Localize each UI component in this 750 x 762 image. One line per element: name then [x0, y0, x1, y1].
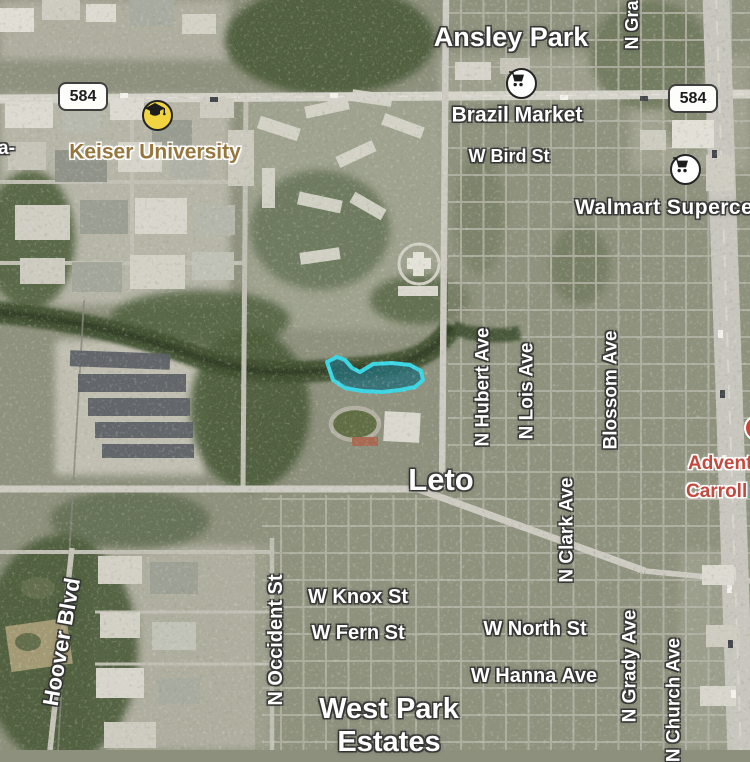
street-label-w-knox-st: W Knox St: [308, 586, 408, 608]
street-label-n-gra: N Gra: [623, 0, 643, 49]
street-label-n-occident-st: N Occident St: [265, 574, 287, 705]
poi-label-adventhealth-carrollwood[interactable]: Advent Carroll: [688, 450, 750, 506]
street-label-n-hubert-ave: N Hubert Ave: [474, 328, 495, 447]
place-label-ansley-park[interactable]: Ansley Park: [434, 23, 589, 53]
shopping-cart-icon[interactable]: [506, 68, 537, 99]
street-label-w-hanna-ave: W Hanna Ave: [471, 665, 597, 687]
maps-satellite-view: { "map": { "mode": "satellite", "place_l…: [0, 0, 750, 750]
street-label-n-church-ave: N Church Ave: [665, 638, 686, 762]
graduation-cap-icon[interactable]: [142, 100, 173, 131]
route-shield-584-west: 584: [58, 82, 108, 111]
satellite-map-canvas[interactable]: 584 584 Ansley Park Leto West Par: [0, 0, 750, 750]
poi-label-brazil-market[interactable]: Brazil Market: [452, 103, 583, 126]
shopping-cart-icon[interactable]: [670, 154, 701, 185]
route-shield-584-east: 584: [668, 84, 718, 113]
street-label-n-clark-ave: N Clark Ave: [558, 477, 579, 582]
street-label-n-grady-ave: N Grady Ave: [621, 610, 642, 723]
poi-label-walmart-supercenter[interactable]: Walmart Superce: [575, 196, 750, 219]
street-label-w-bird-st: W Bird St: [469, 147, 550, 167]
street-label-blossom-ave: Blossom Ave: [602, 331, 623, 450]
street-label-n-lois-ave: N Lois Ave: [518, 343, 539, 440]
place-label-fragment: a-: [0, 139, 15, 160]
street-label-w-fern-st: W Fern St: [311, 622, 404, 644]
poi-label-keiser-university[interactable]: Keiser University: [69, 140, 241, 163]
street-label-w-north-st: W North St: [483, 618, 586, 640]
place-label-leto[interactable]: Leto: [408, 463, 473, 497]
place-label-west-park-estates[interactable]: West Park Estates: [319, 693, 459, 759]
